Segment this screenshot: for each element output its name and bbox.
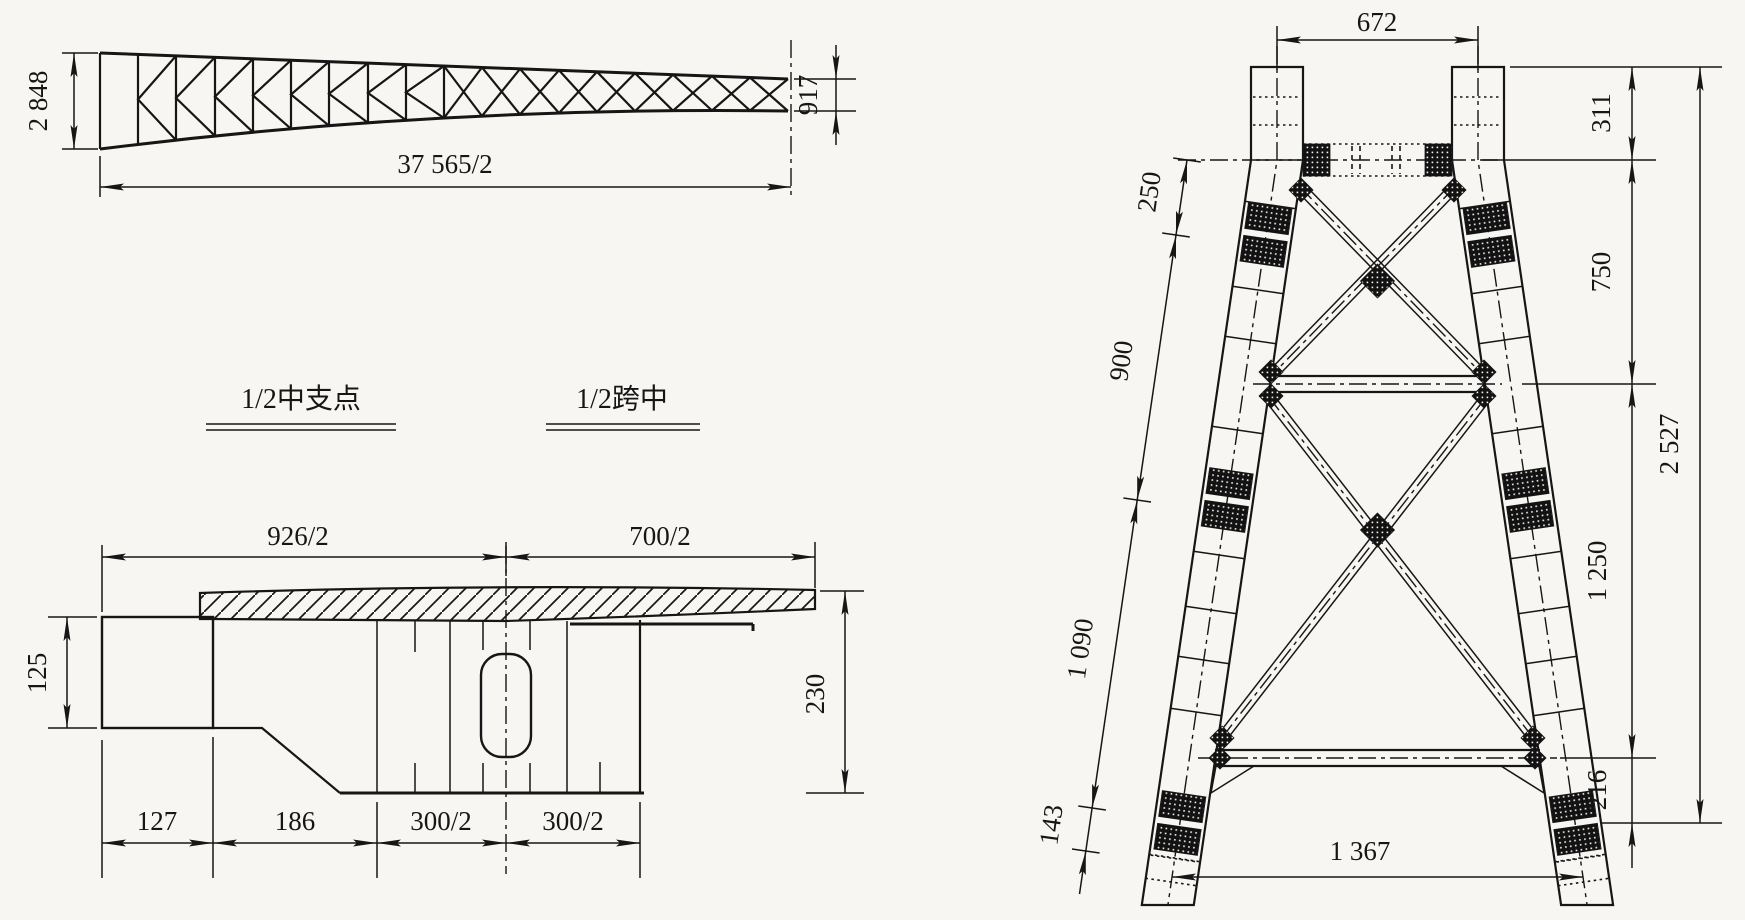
tower-left-dim-label-4: 143 [1033,803,1068,847]
section-title-right: 1/2跨中 [576,383,668,415]
section-top-width-left-label: 926/2 [267,521,329,551]
tower-left-dim-label-2: 900 [1103,339,1138,383]
engineering-drawing-sheet: 2 848 37 565/2 917 1/2中支点 1/2跨中 [0,0,1745,920]
tower-base-width-label: 1 367 [1330,836,1391,866]
bottom-width-label-3: 300/2 [410,806,472,836]
bottom-width-label-4: 300/2 [542,806,604,836]
truss-depth-left-label: 2 848 [23,71,53,132]
tower-top-width-label: 672 [1357,7,1398,37]
tower-total-height-label: 2 527 [1654,414,1684,475]
tower-left-dim-label-1: 250 [1131,170,1166,214]
web-height-right-label: 230 [800,674,830,715]
anchor-box-height-label: 125 [22,653,52,694]
top-strut-splice-right [1425,144,1452,176]
drawing-svg: 2 848 37 565/2 917 1/2中支点 1/2跨中 [0,0,1745,920]
tower-right-dim-label-4: 216 [1582,770,1612,811]
bottom-width-label-2: 186 [275,806,316,836]
section-title-left: 1/2中支点 [241,383,361,415]
tower-right-dim-label-1: 311 [1586,93,1616,133]
truss-half-span-label: 37 565/2 [397,149,492,179]
bottom-width-label-1: 127 [137,806,178,836]
section-top-width-right-label: 700/2 [629,521,691,551]
tower-right-dim-label-2: 750 [1586,252,1616,293]
tower-right-dim-label-3: 1 250 [1582,541,1612,602]
truss-depth-right-label: 917 [793,75,823,116]
